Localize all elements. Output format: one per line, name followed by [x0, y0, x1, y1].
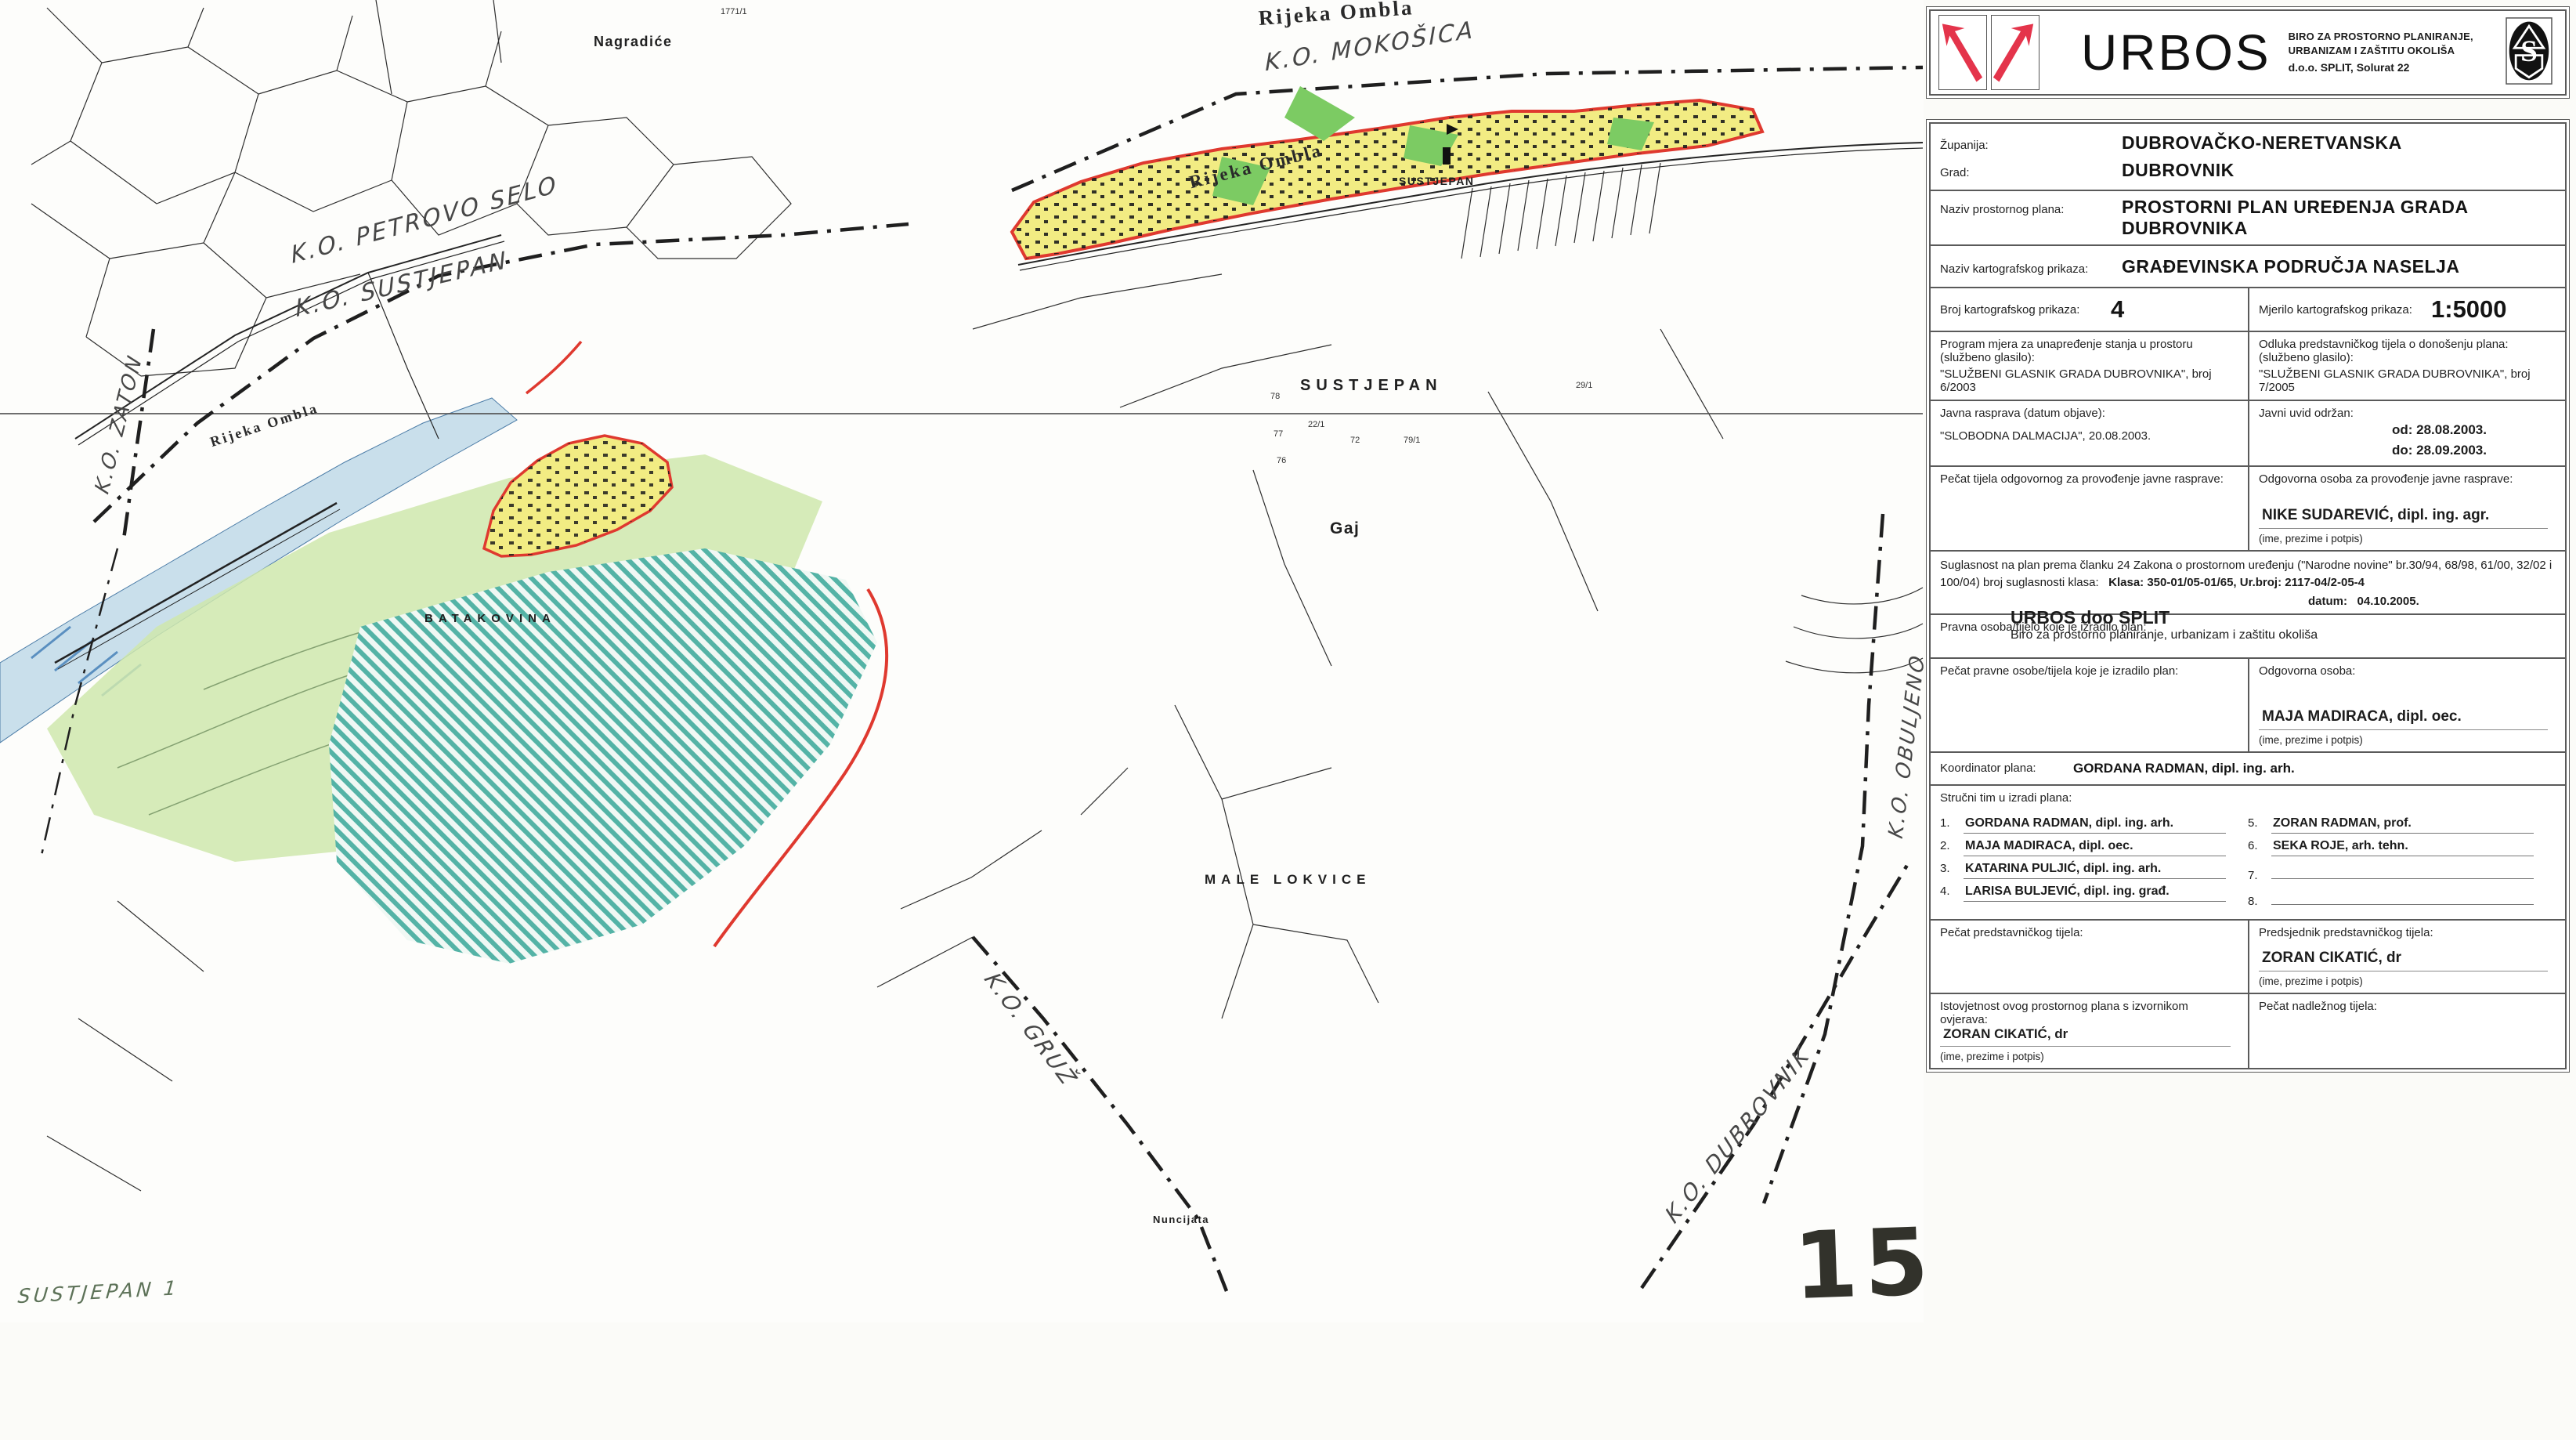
row-naziv-plana: Naziv prostornog plana: PROSTORNI PLAN U…: [1931, 191, 2565, 246]
row-pecat-rasprave: Pečat tijela odgovornog za provođenje ja…: [1931, 467, 2565, 552]
team-member-row: 4.LARISA BULJEVIĆ, dipl. ing. građ.: [1940, 885, 2248, 902]
program-label: Program mjera za unapređenje stanja u pr…: [1940, 338, 2238, 364]
team-member-name: SEKA ROJE, arh. tehn.: [2271, 839, 2534, 856]
odluka-label: Odluka predstavničkog tijela o donošenju…: [2259, 338, 2556, 364]
scanned-plan-sheet: { "colors":{ "boundary_settlement":"#df3…: [0, 0, 2576, 1322]
arrow-up-left-icon: [1938, 15, 1987, 90]
brand-line3: d.o.o. SPLIT, Solurat 22: [2289, 60, 2506, 75]
brand-line1: BIRO ZA PROSTORNO PLANIRANJE,: [2289, 30, 2506, 44]
pecat-rasprave-label: Pečat tijela odgovornog za provođenje ja…: [1940, 472, 2238, 486]
team-member-row: 5.ZORAN RADMAN, prof.: [2248, 816, 2556, 834]
predsjednik-label: Predsjednik predstavničkog tijela:: [2259, 926, 2556, 939]
row-naziv-prikaza: Naziv kartografskog prikaza: GRAĐEVINSKA…: [1931, 246, 2565, 288]
koordinator-label: Koordinator plana:: [1940, 762, 2073, 775]
odg-osoba-label: Odgovorna osoba:: [2259, 664, 2556, 678]
row-broj-mjerilo: Broj kartografskog prikaza: 4 Mjerilo ka…: [1931, 288, 2565, 332]
istovjetnost-label: Istovjetnost ovog prostornog plana s izv…: [1940, 1000, 2238, 1026]
row-istovjetnost: Istovjetnost ovog prostornog plana s izv…: [1931, 994, 2565, 1068]
s-monogram-icon: S: [2506, 17, 2553, 89]
odg-rasprava-label: Odgovorna osoba za provođenje javne rasp…: [2259, 472, 2556, 486]
uvid-do: do: 28.09.2003.: [2392, 440, 2556, 461]
zupanija-label: Županija:: [1940, 139, 2122, 152]
row-program-odluka: Program mjera za unapređenje stanja u pr…: [1931, 332, 2565, 401]
javna-value: "SLOBODNA DALMACIJA", 20.08.2003.: [1940, 429, 2238, 443]
cadastral-map: Rijeka OmblaK.O. MOKOŠICARijeka OmblaNag…: [0, 0, 1927, 1322]
signature-note: (ime, prezime i potpis): [2259, 734, 2556, 746]
row-strucni-tim: Stručni tim u izradi plana: 1.GORDANA RA…: [1931, 786, 2565, 921]
team-member-number: 4.: [1940, 885, 1964, 898]
pravna-value2: Biro za prostorno planiranje, urbanizam …: [2011, 628, 2556, 642]
uvid-od: od: 28.08.2003.: [2392, 420, 2556, 440]
team-column-left: 1.GORDANA RADMAN, dipl. ing. arh.2.MAJA …: [1940, 811, 2248, 914]
suglasnost-datum: 04.10.2005.: [2357, 595, 2419, 608]
team-member-number: 6.: [2248, 839, 2271, 852]
row-suglasnost: Suglasnost na plan prema članku 24 Zakon…: [1931, 552, 2565, 615]
row-zupanija-grad: Županija: DUBROVAČKO-NERETVANSKA Grad: D…: [1931, 124, 2565, 191]
title-block-panel: URBOS BIRO ZA PROSTORNO PLANIRANJE, URBA…: [1924, 0, 2572, 1322]
uvid-label: Javni uvid održan:: [2259, 407, 2556, 420]
signature-note: (ime, prezime i potpis): [2259, 533, 2556, 545]
signature-note: (ime, prezime i potpis): [1940, 1051, 2238, 1062]
team-member-name: ZORAN RADMAN, prof.: [2271, 816, 2534, 834]
team-member-name: GORDANA RADMAN, dipl. ing. arh.: [1964, 816, 2226, 834]
brand-subtitle: BIRO ZA PROSTORNO PLANIRANJE, URBANIZAM …: [2289, 30, 2506, 75]
team-member-name: KATARINA PULJIĆ, dipl. ing. arh.: [1964, 862, 2226, 879]
team-member-row: 7.: [2248, 862, 2556, 882]
svg-text:S: S: [2520, 34, 2538, 68]
koordinator-value: GORDANA RADMAN, dipl. ing. arh.: [2073, 761, 2295, 776]
odluka-value: "SLUŽBENI GLASNIK GRADA DUBROVNIKA", bro…: [2259, 367, 2556, 394]
team-member-number: 1.: [1940, 816, 1964, 830]
team-member-number: 8.: [2248, 895, 2271, 908]
naziv-plana-value: PROSTORNI PLAN UREĐENJA GRADA DUBROVNIKA: [2122, 197, 2556, 239]
mjerilo-label: Mjerilo kartografskog prikaza:: [2259, 303, 2431, 317]
grad-value: DUBROVNIK: [2122, 160, 2235, 181]
zupanija-value: DUBROVAČKO-NERETVANSKA: [2122, 132, 2402, 154]
javna-label: Javna rasprava (datum objave):: [1940, 407, 2238, 420]
odg-osoba-name: MAJA MADIRACA, dipl. oec.: [2259, 708, 2548, 730]
logo-block: URBOS BIRO ZA PROSTORNO PLANIRANJE, URBA…: [1926, 6, 2570, 99]
grad-label: Grad:: [1940, 166, 2122, 179]
row-pecat-pravne: Pečat pravne osobe/tijela koje je izradi…: [1931, 659, 2565, 753]
naziv-plana-label: Naziv prostornog plana:: [1940, 203, 2122, 216]
broj-value: 4: [2111, 295, 2124, 324]
odg-rasprava-name: NIKE SUDAREVIĆ, dipl. ing. agr.: [2259, 507, 2548, 529]
pecat-pravne-label: Pečat pravne osobe/tijela koje je izradi…: [1940, 664, 2238, 678]
row-pravna-osoba: Pravna osoba/tijelo koje je izradilo pla…: [1931, 615, 2565, 659]
istovjetnost-name: ZORAN CIKATIĆ, dr: [1940, 1026, 2231, 1047]
predsjednik-name: ZORAN CIKATIĆ, dr: [2259, 950, 2548, 971]
team-member-number: 2.: [1940, 839, 1964, 852]
mjerilo-value: 1:5000: [2431, 295, 2507, 324]
sheet-number-stamp: 15: [1792, 1207, 1937, 1320]
metadata-table: Županija: DUBROVAČKO-NERETVANSKA Grad: D…: [1926, 119, 2570, 1073]
team-member-number: 3.: [1940, 862, 1964, 875]
team-member-row: 6.SEKA ROJE, arh. tehn.: [2248, 839, 2556, 856]
naziv-prikaza-label: Naziv kartografskog prikaza:: [1940, 262, 2122, 276]
roads: [0, 143, 1923, 445]
team-member-name: LARISA BULJEVIĆ, dipl. ing. građ.: [1964, 885, 2226, 902]
program-value: "SLUŽBENI GLASNIK GRADA DUBROVNIKA", bro…: [1940, 367, 2238, 394]
arrow-up-right-icon: [1991, 15, 2039, 90]
tim-label: Stručni tim u izradi plana:: [1940, 791, 2556, 805]
team-member-number: 7.: [2248, 869, 2271, 882]
team-member-name: [2271, 888, 2534, 905]
broj-label: Broj kartografskog prikaza:: [1940, 303, 2111, 317]
suglasnost-datum-label: datum:: [2308, 595, 2347, 608]
suglasnost-klasa: Klasa: 350-01/05-01/65, Ur.broj: 2117-04…: [2108, 576, 2365, 589]
pecat-predst-label: Pečat predstavničkog tijela:: [1940, 926, 2238, 939]
team-member-row: 2.MAJA MADIRACA, dipl. oec.: [1940, 839, 2248, 856]
map-linework: [0, 0, 1927, 1322]
pravna-value1: URBOS doo SPLIT: [2011, 607, 2556, 628]
brand-name: URBOS: [2081, 24, 2271, 81]
naziv-prikaza-value: GRAĐEVINSKA PODRUČJA NASELJA: [2122, 256, 2459, 277]
team-member-row: 1.GORDANA RADMAN, dipl. ing. arh.: [1940, 816, 2248, 834]
row-javna-uvid: Javna rasprava (datum objave): "SLOBODNA…: [1931, 401, 2565, 467]
brand-line2: URBANIZAM I ZAŠTITU OKOLIŠA: [2289, 44, 2506, 58]
team-member-row: 3.KATARINA PULJIĆ, dipl. ing. arh.: [1940, 862, 2248, 879]
row-koordinator: Koordinator plana: GORDANA RADMAN, dipl.…: [1931, 753, 2565, 786]
pecat-nadleznog-label: Pečat nadležnog tijela:: [2259, 1000, 2556, 1013]
team-column-right: 5.ZORAN RADMAN, prof.6.SEKA ROJE, arh. t…: [2248, 811, 2556, 914]
row-pecat-predstavnickog: Pečat predstavničkog tijela: Predsjednik…: [1931, 921, 2565, 994]
team-member-name: MAJA MADIRACA, dipl. oec.: [1964, 839, 2226, 856]
team-member-name: [2271, 862, 2534, 879]
team-member-row: 8.: [2248, 888, 2556, 908]
signature-note: (ime, prezime i potpis): [2259, 975, 2556, 987]
team-member-number: 5.: [2248, 816, 2271, 830]
